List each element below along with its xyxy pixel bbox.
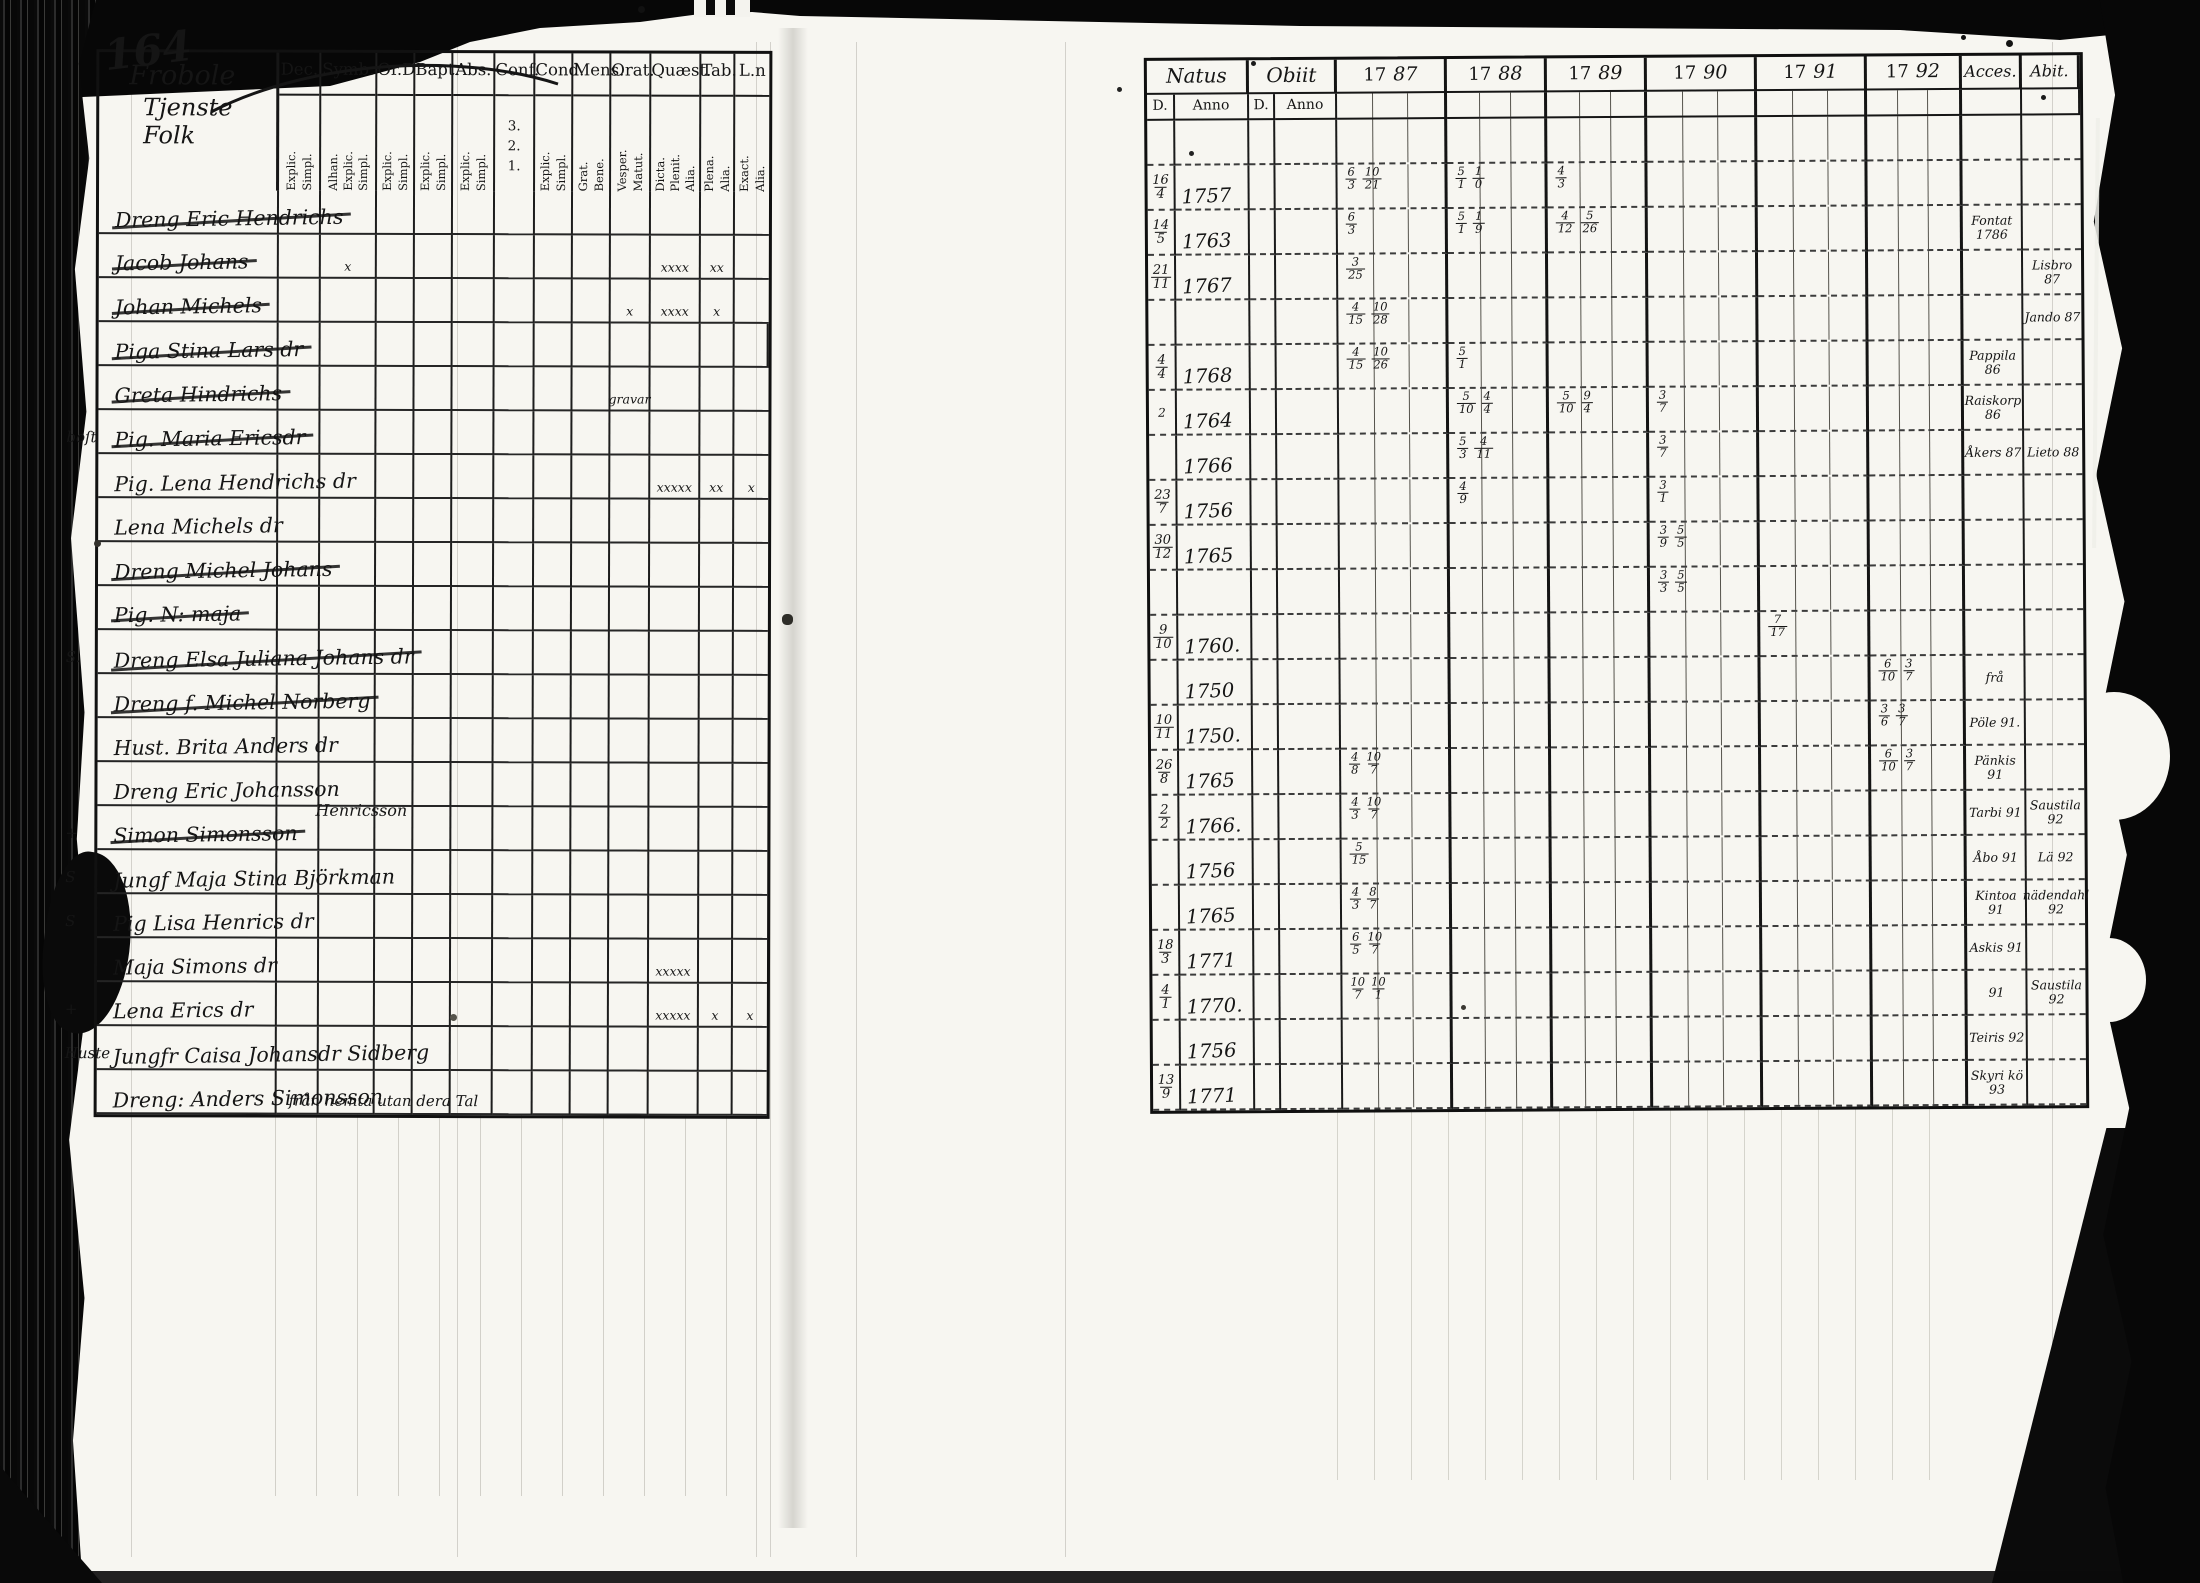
abit-entry: Saustila 92 [2026, 798, 2084, 826]
numerator: 6 [1348, 212, 1355, 224]
denominator: 28 [1371, 313, 1390, 326]
natus-year: 1757 [1181, 183, 1232, 208]
grid-cell [533, 851, 571, 895]
grid-cell: x [611, 279, 651, 323]
table-row: SJungf Maja Stina Björkman [97, 850, 767, 896]
grid-cell [534, 411, 572, 455]
column-subheaders: Exact.Alia. [735, 97, 769, 192]
grid-cell [494, 631, 534, 675]
grid-cell [320, 367, 376, 411]
fraction: 325 [1346, 257, 1365, 281]
grid-cell [735, 192, 769, 236]
fraction: 44 [1155, 354, 1167, 381]
year-cell [1648, 297, 1758, 343]
year-cell [1550, 523, 1650, 569]
fraction: 510 [1557, 390, 1576, 414]
natus-year: 1771 [1187, 1083, 1238, 1108]
grid-cell [611, 235, 651, 279]
name-cell: Pig. Lena Hendrichs dr [98, 454, 278, 498]
numerator: 16 [1152, 174, 1169, 187]
year-cell [1452, 883, 1552, 929]
person-name: Maja Simons dr [113, 953, 277, 979]
grid-cell [571, 1027, 609, 1071]
fraction: 107 [1367, 796, 1382, 820]
grid-cell [376, 367, 414, 411]
natus-year-cell: 1765 [1178, 525, 1252, 570]
fraction: 107 [1367, 931, 1382, 955]
denominator: 11 [1154, 727, 1175, 741]
numerator: 5 [1586, 210, 1593, 222]
denominator: 12 [1556, 222, 1575, 235]
column-label: L.n [735, 54, 769, 97]
denominator: 11 [1474, 447, 1493, 460]
numerator: 6 [1885, 748, 1892, 760]
year-subcell [1757, 90, 1867, 117]
table-row: Dreng Michel Johans [98, 542, 768, 588]
person-name: Dreng Michel Johans [114, 557, 333, 584]
numerator: 3 [1881, 703, 1888, 715]
person-name: Lena Michels dr [114, 513, 283, 539]
grid-cell [573, 191, 611, 235]
year-cell [1648, 207, 1758, 253]
numerator: 4 [1459, 481, 1466, 493]
grid-cell [415, 191, 453, 235]
grid-cell: xxxxx [650, 456, 700, 500]
mark-value: 910 [1153, 624, 1174, 651]
grid-cell [572, 367, 610, 411]
natus-year-cell: 1750 [1178, 660, 1252, 705]
year-cell [1871, 791, 1966, 837]
grid-cell [495, 235, 535, 279]
year-cell: 3355 [1650, 567, 1760, 613]
grid-cell [734, 676, 768, 720]
table-row: 1756Teiris 92 [1153, 1015, 2086, 1066]
grid-cell [415, 235, 453, 279]
column-header-orat: Orat.Vesper.Matut. [611, 53, 651, 191]
mark-value: 22 [1158, 804, 1170, 831]
column-subheaders: Vesper.Matut. [611, 96, 649, 191]
year-cell [1872, 926, 1967, 972]
fraction: 2111 [1151, 264, 1172, 291]
table-row: SPig Lisa Henrics dr [97, 894, 767, 940]
acce-cell: frå [1965, 656, 2025, 701]
column-header-tab: Tab.Plena.Alia. [701, 54, 735, 192]
abit-header: Abit. [2022, 55, 2080, 89]
acce-entry: Pänkis 91 [1966, 753, 2024, 781]
column-label: Mens. [573, 53, 609, 96]
denominator: 15 [1347, 358, 1366, 371]
year-cell: 51 [1449, 343, 1549, 389]
grid-cell [649, 852, 699, 896]
year-cell [1551, 703, 1651, 749]
grid-cell [650, 412, 700, 456]
grid-cell [534, 587, 572, 631]
abit-entry: Lä 92 [2038, 850, 2074, 864]
acce-entry: frå [1986, 670, 2004, 684]
column-header-ln: L.nExact.Alia. [735, 54, 769, 192]
mark-value: 61037 [1871, 746, 1963, 773]
year-cell [1550, 658, 1650, 704]
grid-cell [493, 895, 533, 939]
row-prefix: + [65, 824, 78, 842]
natus-day-cell: 237 [1149, 481, 1177, 526]
natus-year-cell: 1764 [1177, 390, 1251, 435]
natus-year-cell [1176, 300, 1250, 345]
year-cell [1552, 928, 1652, 974]
subheader-label: Plena. [703, 102, 715, 192]
year-cell [1648, 252, 1758, 298]
grid-cell: gravar [610, 367, 650, 411]
denominator: 3 [1346, 223, 1357, 236]
grid-cell [494, 719, 534, 763]
grid-cell [495, 191, 535, 235]
grid-cell [699, 852, 733, 896]
grid-cell [452, 499, 494, 543]
mark-value: 41 [1159, 984, 1171, 1011]
fraction: 43 [1349, 797, 1360, 821]
numerator: 4 [1157, 354, 1165, 367]
fraction: 37 [1657, 435, 1668, 459]
column-subheaders: Grat.Bene. [573, 96, 609, 191]
year-cell [1653, 1062, 1763, 1108]
acce-entry: Raiskorp 86 [1964, 393, 2022, 421]
grid-cell [451, 763, 493, 807]
year-cell [1452, 973, 1552, 1019]
natus-day-cell: 2 [1149, 391, 1177, 436]
fraction: 87 [1367, 886, 1378, 910]
obiit-year-cell [1280, 975, 1342, 1020]
denominator: 2 [1158, 817, 1170, 831]
denominator: 26 [1580, 222, 1599, 235]
table-row: Piga Stina Lars drfrån hemta utan dera T… [99, 322, 769, 368]
subheader-label: 2. [508, 138, 521, 154]
person-name: Jungf Maja Stina Björkman [113, 864, 395, 892]
year-cell [1550, 613, 1650, 659]
name-cell: SJungf Maja Stina Björkman [97, 850, 277, 894]
grid-cell [609, 939, 649, 983]
grid-cell [493, 851, 533, 895]
acce-cell: Åkers 87 [1964, 431, 2024, 476]
grid-cell [649, 764, 699, 808]
obiit-header: Obiit [1249, 60, 1337, 95]
year-cell: 325 [1338, 254, 1448, 300]
obiit-day-cell [1249, 120, 1275, 165]
denominator: 9 [1457, 492, 1468, 505]
numerator: 5 [1459, 346, 1466, 358]
grid-cell [452, 455, 494, 499]
abit-entry: Saustila 92 [2027, 978, 2085, 1006]
grid-cell: xxxx [651, 236, 701, 280]
natus-header: Natus [1147, 60, 1249, 95]
denominator: 10 [1457, 402, 1476, 415]
cell-mark: x [746, 1008, 753, 1026]
abit-cell [2025, 520, 2083, 565]
fraction: 526 [1580, 210, 1599, 234]
denominator: 6 [1879, 715, 1890, 728]
numerator: 9 [1159, 624, 1167, 637]
cell-mark: gravar [609, 391, 651, 409]
grid-cell [451, 851, 493, 895]
cell-mark: x [748, 480, 755, 498]
table-row: 441768415102651Pappila 86 [1149, 340, 2082, 391]
obiit-year-cell [1280, 930, 1342, 975]
grid-cell: x [733, 984, 767, 1028]
grid-cell [650, 500, 700, 544]
numerator: 5 [1459, 436, 1466, 448]
denominator: 3 [1658, 581, 1669, 594]
acce-cell [1963, 296, 2023, 341]
grid-cell [700, 676, 734, 720]
fraction: 415 [1346, 302, 1365, 326]
fraction: 51 [1457, 346, 1468, 370]
grid-cell [533, 763, 571, 807]
year-printed: 17 [1468, 64, 1491, 85]
grid-cell: x [701, 280, 735, 324]
grid-cell [609, 1071, 649, 1115]
natus-year-cell: 1770. [1180, 975, 1254, 1020]
year-cell [1548, 298, 1648, 344]
natus-day-cell: 164 [1147, 166, 1175, 211]
cell-mark: xxxx [661, 260, 689, 278]
grid-cell [572, 631, 610, 675]
obiit-day-cell [1254, 930, 1280, 975]
year-cell [1763, 1061, 1873, 1107]
year-cell [1447, 118, 1547, 164]
table-row: 17654387Kintoa 91nädendahl 92 [1152, 880, 2085, 931]
fraction: 510 [1457, 391, 1476, 415]
year-cell [1553, 1018, 1653, 1064]
mark-value: 3355 [1650, 567, 1757, 594]
table-row: 23717564931 [1149, 475, 2082, 526]
grid-cell: xx [701, 236, 735, 280]
year-cell: 43 [1547, 163, 1647, 209]
grid-cell [452, 543, 494, 587]
name-cell: boſtPig. Maria Ericsdr [98, 410, 278, 454]
grid-cell [733, 1072, 767, 1116]
numerator: 2 [1160, 804, 1168, 817]
grid-cell [533, 939, 571, 983]
grid-cell [650, 720, 700, 764]
grid-cell [321, 279, 377, 323]
acce-cell [1965, 566, 2025, 611]
year-cell [1650, 657, 1760, 703]
year-header: 1789 [1547, 58, 1647, 93]
abit-cell [2024, 475, 2082, 520]
table-row: 9101760.717 [1150, 610, 2083, 661]
year-printed: 17 [1783, 62, 1806, 83]
cell-mark: xxxx [661, 304, 689, 322]
grid-cell [452, 411, 494, 455]
grid-cell [453, 279, 495, 323]
column-header-mens: Mens.Grat.Bene. [573, 53, 611, 191]
grid-cell [534, 455, 572, 499]
abit-cell [2028, 1060, 2086, 1105]
numerator: 3 [1660, 570, 1667, 582]
acce-cell [1962, 161, 2022, 206]
denominator: 8 [1158, 772, 1170, 786]
year-cell: 5110 [1447, 163, 1547, 209]
natus-day-cell [1149, 436, 1177, 481]
subheader-label: 3. [508, 118, 521, 134]
grid-cell [699, 1028, 733, 1072]
table-row: Maja Simons drxxxxx [97, 938, 767, 984]
year-cell [1758, 206, 1868, 252]
grid-cell [533, 1027, 571, 1071]
denominator: 3 [1346, 178, 1357, 191]
acce-cell: Åbo 91 [1967, 835, 2027, 880]
grid-cell [534, 719, 572, 763]
fraction: 19 [1473, 211, 1484, 235]
year-printed: 17 [1886, 61, 1909, 82]
year-subcell [1647, 91, 1757, 118]
numerator: 3 [1660, 525, 1667, 537]
fraction: 43 [1350, 887, 1361, 911]
year-cell [1761, 746, 1871, 792]
name-cell: HusteJungfr Caisa Johansdr Sidberg [97, 1026, 277, 1070]
name-cell: S.Dreng Elsa Juliana Johans dr [98, 630, 278, 674]
year-cell: 51044 [1449, 388, 1549, 434]
natus-day-cell: 1011 [1151, 706, 1179, 751]
natus-day-cell: 139 [1153, 1066, 1181, 1111]
denominator: 10 [1153, 637, 1174, 651]
natus-day-cell: 41 [1152, 976, 1180, 1021]
grid-cell [414, 455, 452, 499]
denominator: 7 [1903, 670, 1914, 683]
abit-cell: Lisbro 87 [2023, 250, 2081, 295]
natus-year: 1756 [1185, 858, 1236, 883]
acce-cell: 91 [1967, 970, 2027, 1015]
grid-cell [571, 983, 609, 1027]
acce-entry: Tarbi 91 [1969, 805, 2022, 819]
natus-year: 1756 [1186, 1038, 1237, 1063]
abit-subcell [2022, 89, 2080, 115]
person-name: Jacob Johans [115, 249, 249, 275]
table-row: Dreng f. Michel Norberg [98, 674, 768, 720]
mark-value: 2111 [1151, 264, 1172, 291]
numerator: 9 [1583, 390, 1590, 402]
grid-cell: x [734, 456, 768, 500]
tab-mark [726, 0, 735, 15]
obiit-day-cell [1252, 570, 1278, 615]
year-cell [1650, 612, 1760, 658]
natus-day-cell: 44 [1149, 346, 1177, 391]
grid-cell [700, 632, 734, 676]
numerator: 10 [1373, 301, 1388, 313]
year-cell [1450, 568, 1550, 614]
grid-cell [651, 192, 701, 236]
natus-day-cell [1148, 301, 1176, 346]
grid-cell [414, 543, 452, 587]
grid-cell [494, 367, 534, 411]
table-row: Johan Michelsxxxxxx [99, 278, 769, 324]
numerator: 10 [1350, 977, 1365, 989]
natus-year: 1750. [1184, 723, 1241, 748]
mark-value: 48107 [1341, 749, 1448, 776]
grid-cell [376, 411, 414, 455]
row-prefix: S [65, 912, 75, 930]
grid-cell [609, 983, 649, 1027]
grid-cell [415, 279, 453, 323]
scan-tab [694, 0, 750, 17]
person-name: Lena Erics dr [113, 997, 254, 1023]
mark-value: 65107 [1342, 929, 1449, 956]
obiit-year-cell [1277, 345, 1339, 390]
fraction: 610 [1879, 748, 1898, 772]
grid-cell [649, 1028, 699, 1072]
acce-subcell [1962, 90, 2022, 116]
acce-cell: Tarbi 91 [1966, 791, 2026, 836]
acce-entry: Pöle 91. [1969, 715, 2020, 729]
table-row: 10111750.3637Pöle 91. [1151, 700, 2084, 751]
natus-year: 1765 [1185, 768, 1236, 793]
numerator: 10 [1371, 976, 1386, 988]
mark-value: 325 [1338, 254, 1445, 281]
grid-cell [494, 675, 534, 719]
year-cell [1551, 793, 1651, 839]
grid-cell [494, 587, 534, 631]
numerator: 5 [1677, 525, 1684, 537]
grid-cell [277, 939, 319, 983]
grid-cell [699, 764, 733, 808]
grid-cell [413, 895, 451, 939]
year-cell [1450, 523, 1550, 569]
year-cell: 37 [1649, 387, 1759, 433]
year-cell: 3637 [1871, 701, 1966, 747]
denominator: 9 [1160, 1087, 1172, 1101]
obiit-day-cell [1250, 255, 1276, 300]
name-cell: Piga Stina Lars dr [99, 322, 279, 366]
grid-cell [733, 940, 767, 984]
cell-mark: xx [709, 480, 723, 498]
year-cell [1760, 566, 1870, 612]
year-cell [1651, 747, 1761, 793]
grid-cell [451, 1027, 493, 1071]
year-cell [1760, 656, 1870, 702]
year-cell [1448, 298, 1548, 344]
grid-cell [494, 499, 534, 543]
year-cell [1869, 431, 1964, 477]
year-cell [1759, 386, 1869, 432]
fraction: 51 [1455, 166, 1466, 190]
column-subheaders: Plena.Alia. [701, 97, 733, 192]
grid-cell [533, 983, 571, 1027]
denominator: 3 [1350, 898, 1361, 911]
year-cell [1340, 659, 1450, 705]
obiit-day-cell [1251, 435, 1277, 480]
obiit-day-cell [1252, 525, 1278, 570]
person-name-secondary: Henricsson [315, 801, 407, 820]
natus-day-cell: 268 [1151, 751, 1179, 796]
person-name: Dreng Eric Hendrichs [115, 205, 344, 232]
obiit-day-cell [1252, 615, 1278, 660]
fraction: 55 [1675, 570, 1686, 594]
acce-cell: Teiris 92 [1968, 1015, 2028, 1060]
year-header: 1790 [1647, 57, 1757, 92]
fraction: 717 [1768, 614, 1787, 638]
fraction: 49 [1457, 481, 1468, 505]
fraction: 107 [1366, 751, 1381, 775]
grid-cell: x [699, 984, 733, 1028]
year-cell [1550, 568, 1650, 614]
abit-entry: Jando 87 [2024, 310, 2080, 324]
year-cell [1759, 431, 1869, 477]
year-cell [1652, 927, 1762, 973]
abit-cell [2024, 385, 2082, 430]
natus-year-cell: 1757 [1175, 165, 1249, 210]
denominator: 3 [1556, 177, 1567, 190]
name-cell: Dreng Michel Johans [98, 542, 278, 586]
denominator: 3 [1159, 952, 1171, 966]
